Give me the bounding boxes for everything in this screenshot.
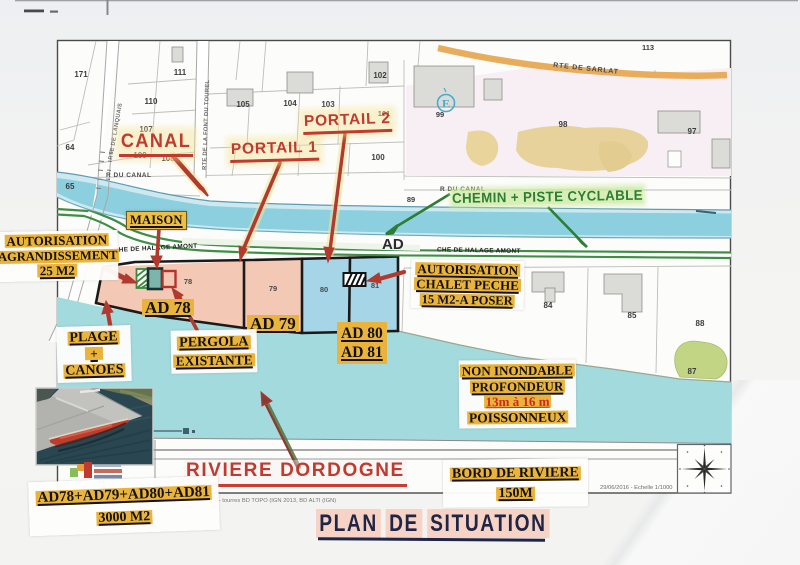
svg-text:88: 88: [696, 319, 705, 328]
svg-text:29/06/2016 - Echelle 1/1000: 29/06/2016 - Echelle 1/1000: [600, 485, 673, 491]
svg-text:64: 64: [66, 143, 75, 152]
svg-text:110: 110: [145, 97, 158, 106]
svg-text:113: 113: [642, 43, 654, 52]
svg-text:105: 105: [236, 100, 250, 109]
svg-text:80: 80: [320, 285, 328, 294]
svg-text:111: 111: [174, 68, 187, 77]
svg-text:85: 85: [628, 311, 637, 320]
svg-text:CHE DE HALAGE AMONT: CHE DE HALAGE AMONT: [437, 247, 521, 255]
svg-text:103: 103: [321, 100, 335, 109]
svg-text:100: 100: [371, 153, 385, 162]
svg-text:99: 99: [436, 110, 444, 119]
svg-text:65: 65: [66, 182, 75, 191]
svg-text:79: 79: [269, 284, 277, 293]
svg-text:84: 84: [544, 301, 553, 310]
svg-text:R DU CANAL: R DU CANAL: [106, 172, 151, 179]
svg-text:104: 104: [283, 99, 297, 108]
svg-text:102: 102: [373, 71, 387, 80]
svg-text:89: 89: [407, 195, 415, 204]
svg-text:87: 87: [688, 367, 697, 376]
svg-text:97: 97: [688, 127, 697, 136]
svg-text:DS - tourres BD TOPO (IGN 2: DS - tourres BD TOPO (IGN 2013, BD ALTI …: [209, 498, 336, 504]
svg-text:98: 98: [559, 120, 568, 129]
svg-text:E: E: [442, 97, 450, 111]
svg-text:78: 78: [184, 277, 192, 286]
svg-text:171: 171: [74, 70, 88, 79]
